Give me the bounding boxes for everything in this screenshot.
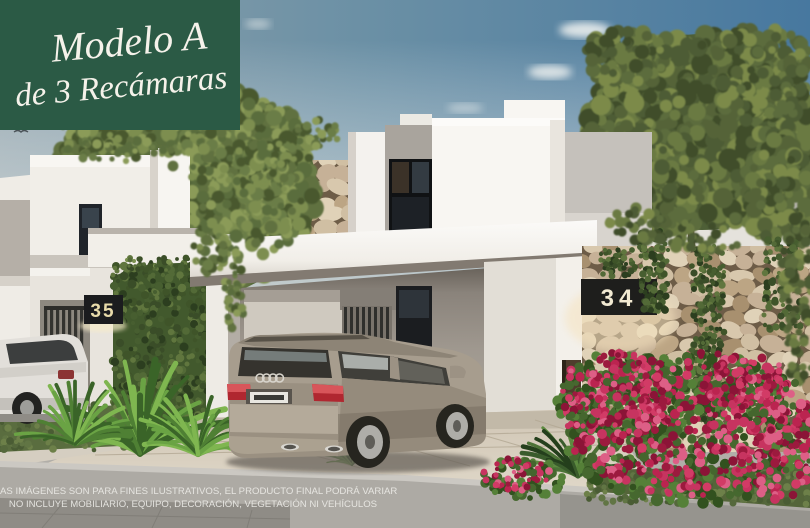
svg-text:35: 35 (90, 301, 115, 322)
svg-text:34: 34 (601, 285, 638, 312)
